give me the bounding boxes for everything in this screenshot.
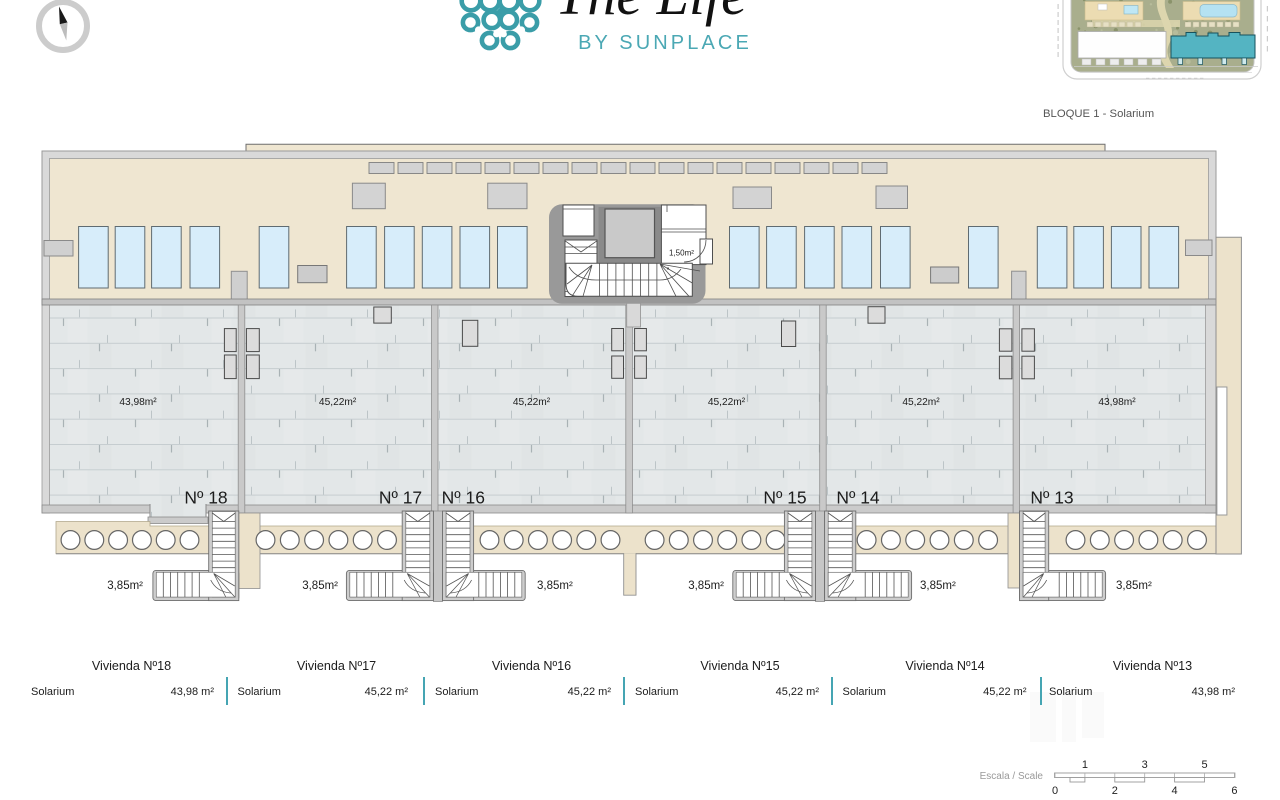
svg-text:1,50m²: 1,50m² bbox=[669, 249, 694, 258]
svg-text:3,85m²: 3,85m² bbox=[302, 580, 338, 592]
svg-text:1: 1 bbox=[1082, 759, 1088, 771]
svg-text:3,85m²: 3,85m² bbox=[107, 580, 143, 592]
svg-text:3,85m²: 3,85m² bbox=[537, 580, 573, 592]
svg-text:4: 4 bbox=[1172, 785, 1178, 797]
svg-text:43,98 m²: 43,98 m² bbox=[171, 686, 215, 698]
svg-text:5: 5 bbox=[1201, 759, 1207, 771]
svg-text:BY SUNPLACE: BY SUNPLACE bbox=[578, 32, 752, 54]
svg-text:Solarium: Solarium bbox=[435, 686, 478, 698]
svg-text:Nº 16: Nº 16 bbox=[442, 488, 485, 508]
svg-text:BLOQUE 1 - Solarium: BLOQUE 1 - Solarium bbox=[1043, 108, 1154, 120]
svg-text:2: 2 bbox=[1112, 785, 1118, 797]
svg-text:Vivienda Nº13: Vivienda Nº13 bbox=[1113, 659, 1192, 673]
svg-text:45,22 m²: 45,22 m² bbox=[568, 686, 612, 698]
svg-text:Solarium: Solarium bbox=[843, 686, 886, 698]
svg-text:Nº 13: Nº 13 bbox=[1030, 488, 1073, 508]
svg-text:3,85m²: 3,85m² bbox=[1116, 580, 1152, 592]
svg-text:3,85m²: 3,85m² bbox=[688, 580, 724, 592]
svg-text:The Life: The Life bbox=[555, 0, 747, 27]
svg-text:Solarium: Solarium bbox=[635, 686, 678, 698]
svg-text:45,22m²: 45,22m² bbox=[902, 397, 940, 408]
svg-text:3: 3 bbox=[1142, 759, 1148, 771]
svg-text:Vivienda Nº14: Vivienda Nº14 bbox=[905, 659, 984, 673]
svg-text:0: 0 bbox=[1052, 785, 1058, 797]
svg-text:45,22m²: 45,22m² bbox=[513, 397, 551, 408]
svg-text:Vivienda Nº17: Vivienda Nº17 bbox=[297, 659, 376, 673]
svg-text:Solarium: Solarium bbox=[238, 686, 281, 698]
svg-text:45,22m²: 45,22m² bbox=[708, 397, 746, 408]
svg-text:3,85m²: 3,85m² bbox=[920, 580, 956, 592]
svg-text:Escala / Scale: Escala / Scale bbox=[980, 771, 1044, 782]
svg-text:45,22 m²: 45,22 m² bbox=[983, 686, 1027, 698]
svg-text:Nº 15: Nº 15 bbox=[763, 488, 806, 508]
svg-text:6: 6 bbox=[1231, 785, 1237, 797]
svg-text:Nº 17: Nº 17 bbox=[379, 488, 422, 508]
svg-text:Nº 18: Nº 18 bbox=[184, 488, 227, 508]
svg-text:Solarium: Solarium bbox=[1049, 686, 1092, 698]
svg-text:43,98m²: 43,98m² bbox=[119, 397, 157, 408]
svg-text:Vivienda Nº15: Vivienda Nº15 bbox=[700, 659, 779, 673]
svg-text:45,22 m²: 45,22 m² bbox=[365, 686, 409, 698]
svg-text:Solarium: Solarium bbox=[31, 686, 74, 698]
svg-text:Vivienda Nº18: Vivienda Nº18 bbox=[92, 659, 171, 673]
svg-text:43,98m²: 43,98m² bbox=[1098, 397, 1136, 408]
svg-text:Nº 14: Nº 14 bbox=[836, 488, 880, 508]
svg-text:45,22 m²: 45,22 m² bbox=[776, 686, 820, 698]
svg-text:43,98 m²: 43,98 m² bbox=[1192, 686, 1236, 698]
svg-text:Vivienda Nº16: Vivienda Nº16 bbox=[492, 659, 571, 673]
svg-text:45,22m²: 45,22m² bbox=[319, 397, 357, 408]
